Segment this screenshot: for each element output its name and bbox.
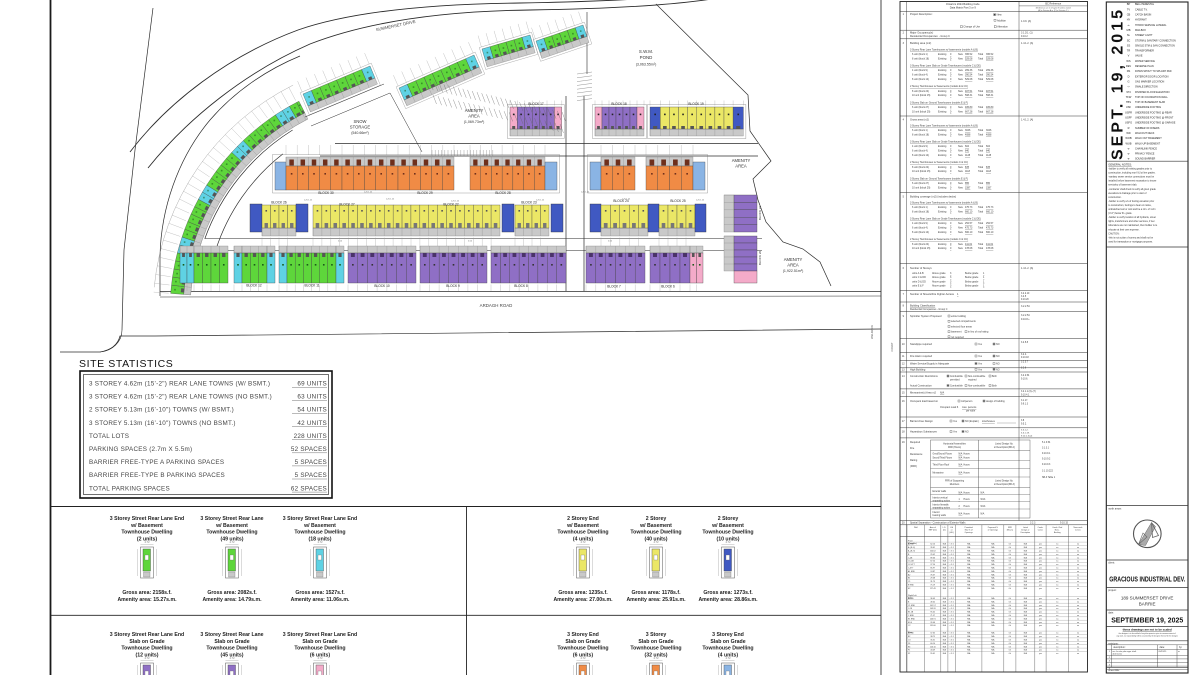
svg-text:Standpipe required: Standpipe required (910, 342, 932, 346)
svg-text:no: no (1077, 625, 1079, 627)
svg-text:N/A: N/A (967, 556, 971, 559)
svg-text:16: 16 (902, 400, 905, 403)
svg-text:New: New (958, 227, 963, 230)
svg-text:draft notes: draft notes (1113, 653, 1122, 656)
svg-text:Total: Total (978, 150, 984, 153)
svg-text:< 3:1: < 3:1 (950, 597, 954, 600)
svg-text:9.10.6.: 9.10.6. (1021, 379, 1028, 381)
svg-text:3.3.1.2.: 3.3.1.2. (1021, 430, 1029, 432)
svg-text:project:: project: (1108, 589, 1117, 592)
svg-text:< 3:1: < 3:1 (950, 635, 954, 638)
svg-text:N/A: N/A (967, 570, 971, 573)
svg-text:-o-: -o- (1127, 153, 1130, 156)
svg-text:3: 3 (950, 272, 952, 275)
svg-text:6 unit (block 27): 6 unit (block 27) (912, 182, 929, 185)
svg-text:3.8: 3.8 (1021, 420, 1025, 422)
svg-text:Total: Total (978, 166, 984, 169)
svg-text:Occupant Load 6: Occupant Load 6 (940, 406, 959, 409)
svg-text:Number of Storeys: Number of Storeys (910, 266, 932, 270)
svg-text:in lieu of roof rating: in lieu of roof rating (968, 331, 989, 334)
svg-text:10 unit (block 15): 10 unit (block 15) (912, 247, 931, 250)
svg-text:Sprinkler System Proposed: Sprinkler System Proposed (910, 314, 942, 318)
svg-text:395.52: 395.52 (965, 53, 973, 56)
svg-text:Required: Required (910, 441, 921, 444)
svg-text:N/A: N/A (967, 567, 971, 570)
svg-text:N/A: N/A (967, 553, 971, 556)
svg-text:sheet title:: sheet title: (1108, 669, 1120, 672)
svg-text:Description: Description (1021, 531, 1030, 534)
svg-text:N/A: N/A (959, 464, 963, 467)
svg-text:0: 0 (950, 129, 952, 132)
svg-text:N/A: N/A (943, 624, 947, 627)
svg-text:Total: Total (978, 222, 984, 225)
svg-text:[A] in Division A or [C] in Di: [A] in Division A or [C] in Division C.) (1038, 9, 1069, 12)
svg-text:8 unit (block 14): 8 unit (block 14) (912, 78, 929, 81)
svg-text:4088: 4088 (986, 134, 992, 137)
svg-text:USFG: USFG (1125, 121, 1132, 125)
svg-text:New: New (958, 129, 963, 132)
svg-text:N/A: N/A (991, 580, 995, 583)
svg-text:ra: ra (1178, 651, 1181, 653)
svg-text:N/A: N/A (1024, 577, 1028, 580)
svg-text:N/A: N/A (943, 567, 947, 570)
svg-text:Existing: Existing (938, 243, 947, 246)
svg-text:bearing walls: bearing walls (933, 514, 947, 517)
svg-text:10 unit (block 29): 10 unit (block 29) (912, 110, 931, 113)
svg-text:description:: description: (1113, 646, 1126, 649)
svg-text:Mezzanine: Mezzanine (933, 473, 945, 475)
svg-text:9.10.8.+: 9.10.8.+ (1021, 318, 1030, 321)
svg-text:667.28: 667.28 (986, 110, 994, 113)
svg-text:N/A: N/A (991, 624, 995, 627)
svg-text:New: New (958, 170, 963, 173)
svg-text:required: required (968, 379, 977, 382)
svg-text:V: V (1128, 54, 1130, 58)
svg-text:Below grade: Below grade (965, 280, 979, 283)
svg-text:N/A: N/A (1024, 632, 1028, 635)
svg-text:Existing: Existing (938, 227, 947, 230)
svg-text:568.31: 568.31 (965, 94, 973, 97)
svg-text:BELL PEDESTAL: BELL PEDESTAL (1135, 3, 1155, 6)
svg-text:189 SUMMERSET DRIVE: 189 SUMMERSET DRIVE (1121, 596, 1173, 601)
svg-text:Existing: Existing (938, 182, 947, 185)
svg-text:3.2.3.: 3.2.3. (1030, 522, 1036, 525)
svg-text:N/A: N/A (967, 617, 971, 620)
svg-text:N/A: N/A (1024, 556, 1028, 559)
svg-text:WS: WS (1126, 59, 1130, 63)
svg-text:1.4.1.2. [A]: 1.4.1.2. [A] (1021, 42, 1033, 45)
svg-text:any work, no responsibility w: any work, no responsibility will be assu… (1116, 635, 1178, 638)
svg-text:N/A: N/A (943, 573, 947, 576)
svg-text:13: 13 (902, 368, 905, 371)
svg-text:Exterior walls: Exterior walls (933, 490, 948, 493)
svg-text:BC Reference: BC Reference (1045, 2, 1061, 5)
svg-text:N/A: N/A (967, 587, 971, 590)
svg-text:< 3:1: < 3:1 (950, 567, 954, 570)
svg-text:elevations & drainage prior to: elevations & drainage prior to start of (1108, 192, 1146, 195)
svg-text:6 unit (block 4): 6 unit (block 4) (912, 227, 928, 230)
svg-text:TV: TV (1127, 7, 1131, 11)
svg-text:SEPTEMBER 19, 2025: SEPTEMBER 19, 2025 (1111, 618, 1183, 625)
svg-text:N/A: N/A (967, 611, 971, 614)
svg-text:15: 15 (902, 392, 905, 395)
svg-text:< 3:1: < 3:1 (950, 614, 954, 617)
svg-text:TRANSFORMER: TRANSFORMER (1135, 50, 1154, 53)
svg-text:townhouses: townhouses (982, 420, 996, 423)
svg-text:Total: Total (978, 206, 984, 209)
svg-text:New: New (958, 150, 963, 153)
svg-text:Listed Design No.: Listed Design No. (995, 443, 1013, 446)
svg-text:4 unit (block 9): 4 unit (block 9) (912, 69, 928, 72)
svg-text:Hours: Hours (964, 492, 971, 495)
svg-text:Water Service/Supply is Adequa: Water Service/Supply is Adequate (910, 362, 950, 366)
svg-text:8 unit (block 18): 8 unit (block 18) (912, 134, 929, 137)
svg-text:0: 0 (950, 170, 952, 173)
svg-text:->: -> (1127, 85, 1130, 89)
svg-text:4 unit (block 9): 4 unit (block 9) (912, 145, 928, 148)
svg-text:N/A: N/A (981, 492, 985, 495)
svg-text:Existing: Existing (938, 129, 947, 132)
svg-text:1: 1 (957, 292, 959, 296)
svg-text:0: 0 (950, 94, 952, 97)
svg-text:1: 1 (959, 499, 961, 501)
svg-text:N/A: N/A (943, 543, 947, 546)
svg-text:-+-: -+- (1127, 24, 1130, 27)
svg-text:Total: Total (978, 243, 984, 246)
svg-text:1: 1 (1109, 651, 1111, 653)
svg-text:N/A: N/A (991, 621, 995, 624)
svg-text:Members: Members (950, 483, 960, 486)
svg-text:Existing: Existing (938, 74, 947, 77)
svg-text:878: 878 (965, 166, 970, 169)
svg-text:N/A: N/A (1024, 584, 1028, 587)
svg-text:N/A: N/A (967, 550, 971, 553)
svg-text:Existing: Existing (938, 78, 947, 81)
svg-text:9: 9 (903, 315, 905, 318)
svg-text:Total: Total (978, 134, 984, 137)
svg-text:Change of Use: Change of Use (963, 26, 980, 29)
svg-text:N/A: N/A (1024, 550, 1028, 553)
svg-text:N/A: N/A (1024, 573, 1028, 576)
svg-text:CAUTION:: CAUTION: (1108, 232, 1119, 235)
svg-text:8 unit (block 24): 8 unit (block 24) (912, 243, 929, 246)
svg-text:0: 0 (950, 69, 952, 72)
svg-text:WUB: WUB (1125, 141, 1131, 145)
svg-text:client:: client: (1108, 562, 1115, 565)
svg-text:Major Occupancy(s): Major Occupancy(s) (910, 31, 933, 35)
svg-text:N/A: N/A (943, 639, 947, 642)
svg-text:construction.: construction. (1108, 196, 1122, 199)
svg-text:undisturbed soil or rock and b: undisturbed soil or rock and be a min. o… (1108, 208, 1155, 211)
svg-text:FINISHED FLOOR ELEVATION: FINISHED FLOOR ELEVATION (1135, 91, 1170, 94)
svg-text:3.2.2.54: 3.2.2.54 (1021, 314, 1030, 317)
svg-text:Hours: Hours (964, 498, 971, 501)
svg-text:Yes: Yes (978, 363, 983, 366)
svg-text:not required: not required (951, 336, 964, 339)
svg-text:New: New (958, 145, 963, 148)
svg-text:Total: Total (978, 145, 984, 148)
svg-text:3.2.5.7: 3.2.5.7 (1021, 362, 1029, 364)
svg-text:New: New (958, 110, 963, 113)
svg-text:N/A: N/A (991, 543, 995, 546)
svg-text:95.61: 95.61 (930, 653, 935, 655)
svg-text:N/A: N/A (967, 560, 971, 563)
svg-text:per suite: per suite (966, 410, 976, 413)
svg-text:252.57: 252.57 (965, 222, 973, 225)
svg-text:660.10: 660.10 (986, 211, 994, 214)
svg-text:3.1.10.222: 3.1.10.222 (1042, 471, 1054, 473)
svg-text:< 3:1: < 3:1 (950, 624, 954, 627)
svg-text:New: New (958, 231, 963, 234)
svg-text:Existing: Existing (938, 94, 947, 97)
svg-text:Total: Total (978, 53, 984, 56)
svg-text:rev. for site plan appr. draft: rev. for site plan appr. draft (1113, 650, 1137, 653)
svg-text:or: or (951, 529, 953, 532)
svg-text:Occupant load based on: Occupant load based on (910, 399, 939, 403)
svg-text:N/A: N/A (991, 652, 995, 655)
svg-text:Total: Total (978, 106, 984, 109)
svg-text:relocate at their own expense.: relocate at their own expense. (1108, 228, 1139, 231)
svg-text:-contractor shall check & veri: -contractor shall check & verify all giv… (1108, 188, 1156, 191)
svg-text:N/A: N/A (991, 642, 995, 645)
svg-text:Total: Total (978, 182, 984, 185)
svg-text:< 3:1: < 3:1 (950, 639, 954, 642)
svg-text:DS: DS (1127, 69, 1131, 73)
svg-text:N/A: N/A (967, 604, 971, 607)
svg-text:SL: SL (1127, 33, 1131, 37)
svg-text:3.2.1.1.(3)~(7): 3.2.1.1.(3)~(7) (1021, 391, 1036, 393)
svg-text:0: 0 (950, 78, 952, 81)
svg-text:NO: NO (996, 368, 1000, 371)
svg-text:Grnd/Secnd Floors: Grnd/Secnd Floors (933, 453, 953, 456)
svg-text:New: New (958, 94, 963, 97)
svg-text:New: New (958, 186, 963, 189)
svg-text:TR: TR (1127, 49, 1131, 53)
svg-text:N/A: N/A (991, 573, 995, 576)
svg-text:N/A: N/A (959, 513, 963, 516)
svg-text:1128: 1128 (986, 154, 992, 157)
svg-text:840: 840 (986, 150, 991, 153)
svg-text:N/A: N/A (991, 645, 995, 648)
svg-text:UNDERSIDE FOOTING @ GARAGE: UNDERSIDE FOOTING @ GARAGE (1135, 122, 1176, 125)
svg-text:12: 12 (902, 363, 905, 366)
svg-text:0: 0 (950, 110, 952, 113)
svg-text:3046: 3046 (965, 129, 971, 132)
svg-text:MAILBOX: MAILBOX (1135, 29, 1146, 32)
svg-text:N/A: N/A (967, 621, 971, 624)
svg-text:478.08: 478.08 (986, 247, 994, 250)
svg-text:Existing: Existing (938, 150, 947, 153)
svg-text:N/A: N/A (943, 580, 947, 583)
svg-text:F2: F2 (908, 653, 910, 655)
svg-text:N/A: N/A (991, 546, 995, 549)
svg-text:New: New (958, 182, 963, 185)
svg-text:973: 973 (1126, 90, 1131, 94)
svg-text:New: New (958, 58, 963, 61)
svg-text:yes: yes (1039, 625, 1042, 627)
svg-text:< 3:1: < 3:1 (950, 652, 954, 655)
svg-text:yes: yes (1039, 588, 1042, 590)
svg-text:N/A: N/A (1024, 543, 1028, 546)
svg-text:Total: Total (978, 129, 984, 132)
svg-text:separating suites: separating suites (933, 500, 951, 503)
svg-text:3.1.3.1: 3.1.3.1 (1042, 448, 1050, 450)
svg-text:855: 855 (965, 182, 970, 185)
svg-text:9.5.2.: 9.5.2. (1021, 423, 1027, 425)
svg-text:5: 5 (903, 196, 905, 199)
svg-text:N/A: N/A (943, 546, 947, 549)
svg-text:Existing: Existing (938, 154, 947, 157)
svg-text:PRIVACY FENCE: PRIVACY FENCE (1135, 153, 1155, 156)
svg-text:date:: date: (1160, 646, 1166, 649)
svg-text:SEPT. 19, 2015: SEPT. 19, 2015 (1109, 10, 1126, 160)
svg-text:permitted: permitted (950, 379, 960, 382)
svg-text:1587: 1587 (986, 186, 992, 189)
svg-text:Existing: Existing (938, 110, 947, 113)
svg-text:N/A: N/A (991, 635, 995, 638)
svg-text:N/A: N/A (991, 577, 995, 580)
svg-text:units E & F: units E & F (912, 285, 924, 288)
svg-text:Existing: Existing (938, 53, 947, 56)
svg-text:Hours: Hours (964, 457, 971, 460)
svg-text:Hours: Hours (964, 464, 971, 467)
svg-text:N/A: N/A (943, 645, 947, 648)
svg-text:Below grade: Below grade (965, 272, 979, 275)
svg-text:N/A: N/A (1024, 635, 1028, 638)
svg-text:Hours: Hours (964, 472, 971, 475)
svg-text:N/A: N/A (1024, 652, 1028, 655)
svg-text:252.57: 252.57 (986, 222, 994, 225)
svg-text:0h: 0h (1009, 653, 1011, 655)
svg-text:BP: BP (1127, 2, 1131, 6)
svg-text:N/A: N/A (1024, 560, 1028, 563)
svg-text:no: no (1077, 588, 1079, 590)
svg-text:0: 0 (950, 58, 952, 61)
svg-text:Total: Total (978, 186, 984, 189)
svg-text:N/A: N/A (991, 567, 995, 570)
svg-text:6: 6 (903, 267, 905, 270)
svg-text:DOWN SPOUT TO SPLASH PAD: DOWN SPOUT TO SPLASH PAD (1135, 70, 1172, 73)
svg-text:N/A: N/A (991, 563, 995, 566)
svg-text:N/A: N/A (943, 607, 947, 610)
svg-text:0: 0 (950, 182, 952, 185)
svg-text:Non-combustible: Non-combustible (968, 375, 986, 378)
svg-text:N/A: N/A (967, 580, 971, 583)
svg-text:yes: yes (1039, 653, 1042, 655)
svg-text:14: 14 (902, 375, 905, 378)
svg-text:N/A: N/A (967, 563, 971, 566)
svg-text:660.10: 660.10 (965, 231, 973, 234)
svg-text:Resistance: Resistance (910, 453, 923, 456)
svg-text:11: 11 (902, 355, 905, 358)
svg-text:529.08: 529.08 (965, 78, 973, 81)
svg-text:New: New (958, 53, 963, 56)
svg-text:2: 2 (959, 506, 961, 508)
svg-text:N/A: N/A (1024, 607, 1028, 610)
svg-text:9.10.9.2: 9.10.9.2 (1042, 459, 1051, 461)
svg-text:3046: 3046 (986, 129, 992, 132)
svg-text:N/A: N/A (967, 632, 971, 635)
svg-text:Building Classification: Building Classification (910, 304, 936, 308)
svg-text:604: 604 (965, 145, 970, 148)
svg-text:New: New (958, 106, 963, 109)
svg-text:N/A: N/A (943, 642, 947, 645)
svg-text:Interior vertical: Interior vertical (933, 497, 949, 500)
svg-text:UNDERSIDE FOOTING @ FRONT: UNDERSIDE FOOTING @ FRONT (1135, 117, 1174, 120)
svg-text:-sanitary sewer service connec: -sanitary sewer service connections must… (1108, 176, 1155, 179)
svg-text:New: New (997, 14, 1002, 17)
svg-text:Existing: Existing (938, 69, 947, 72)
svg-text:-x-: -x- (1127, 147, 1130, 150)
svg-text:407.51: 407.51 (965, 90, 973, 93)
svg-text:Total: Total (978, 58, 984, 61)
svg-text:Existing: Existing (938, 58, 947, 61)
svg-text:N/A: N/A (943, 649, 947, 652)
svg-text:N/A: N/A (1024, 600, 1028, 603)
svg-text:1128: 1128 (965, 154, 971, 157)
svg-text:CB: CB (1127, 13, 1131, 17)
svg-text:N/A: N/A (967, 614, 971, 617)
svg-text:no: no (1077, 653, 1079, 655)
svg-text:N/A: N/A (991, 553, 995, 556)
svg-text:Existing: Existing (938, 106, 947, 109)
svg-text:New: New (958, 247, 963, 250)
svg-text:10 unit (block 29): 10 unit (block 29) (912, 186, 931, 189)
svg-text:Hazardous Substances: Hazardous Substances (910, 430, 938, 434)
svg-text:N/A: N/A (1024, 563, 1028, 566)
svg-text:of Openings: of Openings (988, 530, 998, 532)
svg-text:N/A: N/A (943, 577, 947, 580)
svg-text:0: 0 (950, 206, 952, 209)
svg-text:N/A: N/A (967, 649, 971, 652)
svg-text:New: New (958, 222, 963, 225)
svg-text:New: New (958, 166, 963, 169)
svg-text:N/A: N/A (943, 617, 947, 620)
svg-text:N/A: N/A (967, 543, 971, 546)
svg-text:10: 10 (902, 343, 905, 346)
svg-text:EXTERIOR DOOR LOCATION: EXTERIOR DOOR LOCATION (1135, 75, 1169, 78)
svg-text:N/A: N/A (943, 553, 947, 556)
svg-text:405.80: 405.80 (986, 106, 994, 109)
svg-text:NO (Explain): NO (Explain) (965, 420, 979, 423)
svg-text:N/A: N/A (991, 584, 995, 587)
svg-text:3.2.2.54: 3.2.2.54 (1021, 305, 1030, 308)
svg-text:W1b: W1b (981, 499, 986, 501)
svg-text:0: 0 (950, 53, 952, 56)
svg-text:N/A: N/A (1024, 621, 1028, 624)
svg-text:< 3:1: < 3:1 (950, 553, 954, 556)
svg-text:2 Storey Townhouses w/ basemen: 2 Storey Townhouses w/ basements (models… (910, 238, 968, 241)
svg-text:478.08: 478.08 (965, 247, 973, 250)
svg-text:Ontario's 2024 Building Code: Ontario's 2024 Building Code (946, 2, 980, 6)
svg-text:W1b: W1b (981, 506, 986, 508)
svg-text:-this is not a plan of survey: -this is not a plan of survey and shall … (1108, 236, 1153, 239)
svg-text:N/A: N/A (943, 652, 947, 655)
svg-text:Project Description:: Project Description: (910, 12, 933, 16)
svg-text:N/A: N/A (943, 600, 947, 603)
svg-text:< 3:1: < 3:1 (950, 556, 954, 559)
svg-text:529.08: 529.08 (986, 58, 994, 61)
svg-text:BARRIE: BARRIE (1139, 602, 1156, 607)
svg-text:N/A: N/A (1024, 614, 1028, 617)
svg-text:to construction, footings to b: to construction, footings to bear on nat… (1108, 204, 1152, 207)
svg-text:< 3:1: < 3:1 (950, 577, 954, 580)
svg-text:FRR (Hours): FRR (Hours) (948, 446, 961, 449)
svg-text:411.61: 411.61 (965, 243, 973, 246)
svg-text:N/A: N/A (943, 614, 947, 617)
svg-text:1118: 1118 (986, 170, 992, 173)
svg-text:N/A: N/A (967, 652, 971, 655)
